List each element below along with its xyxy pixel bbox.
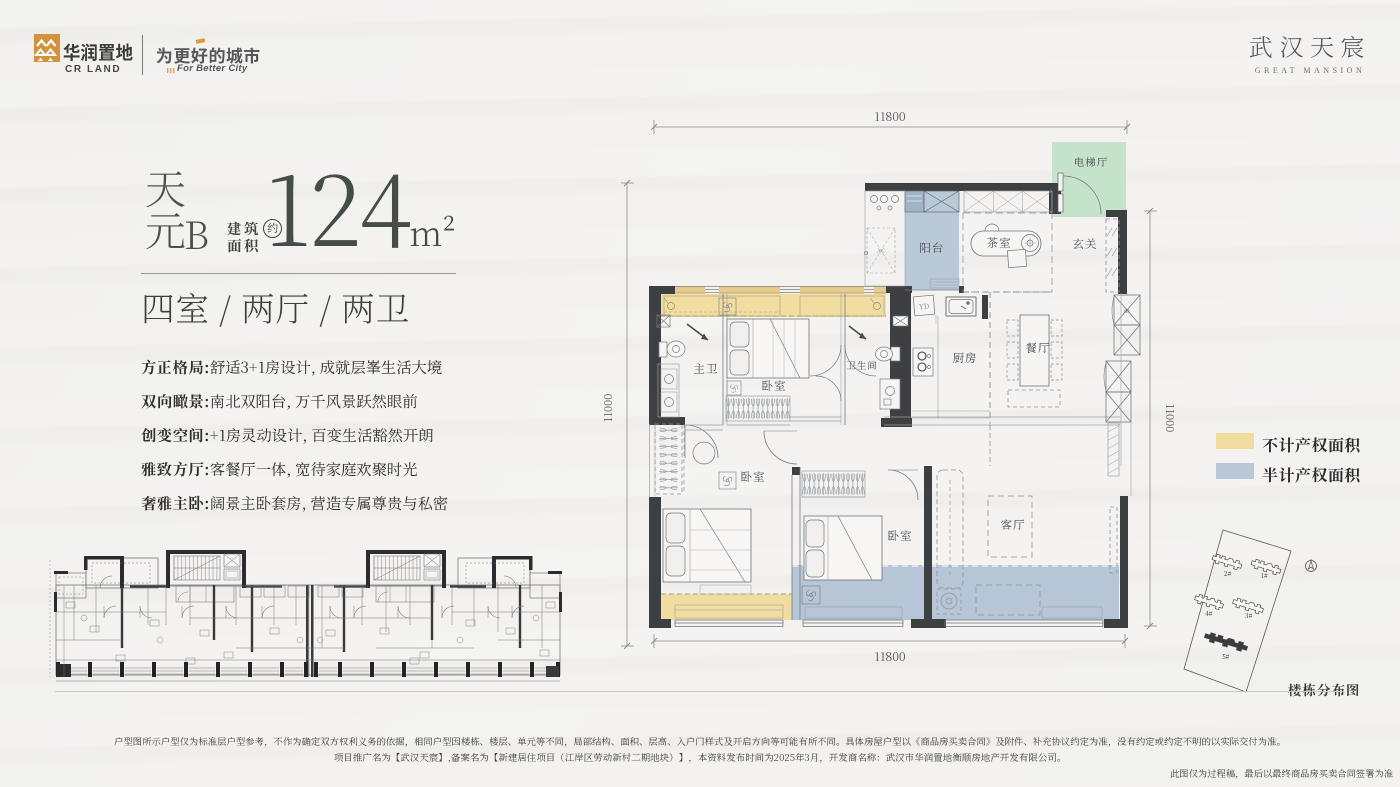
svg-text:11000: 11000 (1162, 404, 1178, 433)
svg-text:11000: 11000 (600, 394, 616, 423)
svg-text:YD: YD (919, 302, 930, 313)
svg-text:11800: 11800 (874, 108, 906, 125)
svg-text:4#: 4# (1205, 609, 1213, 618)
svg-text:2#: 2# (1224, 569, 1232, 578)
svg-text:厨房: 厨房 (953, 350, 978, 366)
svg-text:卧室: 卧室 (888, 528, 913, 544)
svg-text:卫生间: 卫生间 (846, 358, 878, 372)
svg-text:玄关: 玄关 (1073, 236, 1098, 252)
svg-text:m: m (1123, 306, 1130, 315)
svg-text:茶室: 茶室 (987, 235, 1012, 251)
svg-text:客厅: 客厅 (1001, 517, 1026, 533)
svg-text:主卫: 主卫 (694, 361, 719, 377)
svg-text:卧室: 卧室 (741, 469, 766, 485)
svg-text:卧室: 卧室 (762, 378, 787, 394)
svg-text:5#: 5# (1221, 652, 1230, 661)
svg-text:阳台: 阳台 (920, 240, 945, 256)
svg-text:电梯厅: 电梯厅 (1074, 155, 1109, 170)
svg-text:3#: 3# (1245, 611, 1253, 620)
svg-text:餐厅: 餐厅 (1026, 340, 1051, 356)
svg-text:AC: AC (877, 246, 885, 255)
svg-text:1#: 1# (1261, 571, 1268, 580)
svg-text:11800: 11800 (874, 648, 906, 665)
